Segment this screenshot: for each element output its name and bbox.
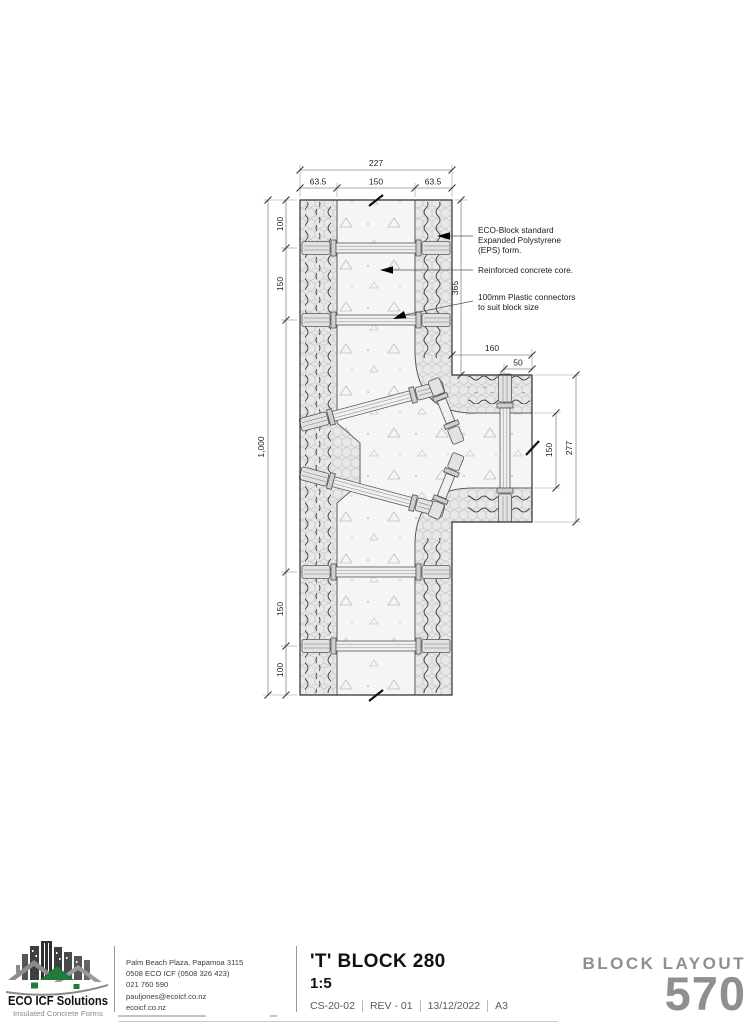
contact-email[interactable]: pauljones@ecoicf.co.nz bbox=[126, 991, 243, 1002]
dim-core: 150 bbox=[369, 177, 383, 187]
sheet-date: 13/12/2022 bbox=[420, 1000, 488, 1012]
logo-tagline: Insulated Concrete Forms bbox=[13, 1009, 103, 1018]
contact-website[interactable]: ecoicf.co.nz bbox=[126, 1002, 243, 1013]
dim-branch-150: 150 bbox=[544, 443, 554, 457]
dim-branch-277: 277 bbox=[564, 441, 574, 455]
dim-left-100-top: 100 bbox=[275, 217, 285, 231]
sheet-size: A3 bbox=[487, 1000, 515, 1012]
titleblock-divider-2 bbox=[296, 946, 297, 1012]
dim-overall-width: 227 bbox=[369, 158, 383, 168]
block-layout-number: 570 bbox=[583, 973, 747, 1015]
dim-160: 160 bbox=[485, 343, 499, 353]
dim-overall-height: 1,000 bbox=[256, 436, 266, 458]
annotation-eps-line3: (EPS) form. bbox=[478, 245, 521, 255]
contact-phone-0508: 0508 ECO ICF (0508 326 423) bbox=[126, 968, 243, 979]
sheet-revision: REV - 01 bbox=[362, 1000, 420, 1012]
sheet-title-block: 'T' BLOCK 280 1:5 CS-20-02 REV - 01 13/1… bbox=[310, 951, 590, 1012]
annotation-connectors-line1: 100mm Plastic connectors bbox=[478, 292, 575, 302]
annotation-core: Reinforced concrete core. bbox=[478, 265, 573, 275]
annotation-connectors-line2: to suit block size bbox=[478, 302, 539, 312]
sheet-title: 'T' BLOCK 280 bbox=[310, 951, 590, 973]
titleblock-divider-1 bbox=[114, 946, 115, 1012]
dim-365: 365 bbox=[450, 281, 460, 295]
annotation-eps-line1: ECO-Block standard bbox=[478, 225, 554, 235]
drawing-sheet: 227 63.5 150 63.5 100 150 1,000 150 100 … bbox=[0, 0, 754, 1024]
dim-left-150-bottom: 150 bbox=[275, 602, 285, 616]
dim-eps-right: 63.5 bbox=[425, 177, 442, 187]
fineprint-line bbox=[118, 1015, 206, 1017]
dim-50: 50 bbox=[513, 358, 523, 368]
fineprint-mark bbox=[270, 1015, 277, 1017]
contact-block: Palm Beach Plaza, Papamoa 3115 0508 ECO … bbox=[126, 957, 243, 1013]
logo-name: ECO ICF Solutions bbox=[8, 993, 108, 1008]
dim-left-150-top: 150 bbox=[275, 277, 285, 291]
technical-drawing: 227 63.5 150 63.5 100 150 1,000 150 100 … bbox=[0, 0, 754, 930]
sheet-number: CS-20-02 bbox=[310, 1000, 362, 1012]
contact-address: Palm Beach Plaza, Papamoa 3115 bbox=[126, 957, 243, 968]
dim-eps-left: 63.5 bbox=[310, 177, 327, 187]
company-logo: ECO ICF Solutions Insulated Concrete For… bbox=[4, 938, 114, 1024]
contact-phone-mobile: 021 760 590 bbox=[126, 979, 243, 990]
sheet-info-row: CS-20-02 REV - 01 13/12/2022 A3 bbox=[310, 1000, 590, 1012]
block-layout-block: BLOCK LAYOUT 570 bbox=[583, 955, 747, 1015]
dim-left-100-bottom: 100 bbox=[275, 663, 285, 677]
sheet-scale: 1:5 bbox=[310, 975, 590, 993]
titleblock-bottom-rule bbox=[118, 1021, 558, 1022]
annotation-eps-line2: Expanded Polystyrene bbox=[478, 235, 561, 245]
